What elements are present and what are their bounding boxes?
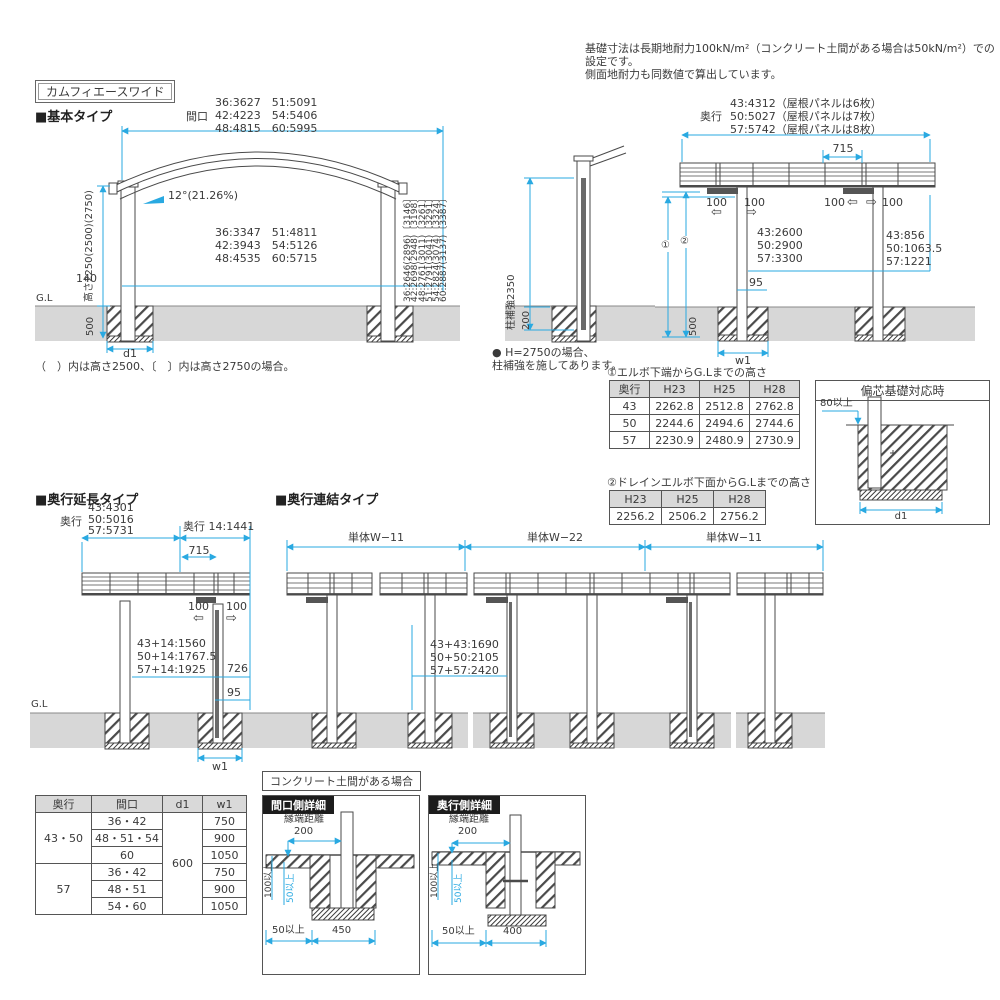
cell: 750: [203, 813, 247, 830]
front-height-label: 高さ2250(2500)(2750): [84, 190, 96, 302]
hollow-arrow-right-icon: ⇨: [226, 612, 237, 625]
dim-text: 42:4223 54:5406: [215, 109, 317, 122]
dim-text: 42:3943 54:5126: [215, 239, 317, 252]
cell: 2230.9: [650, 432, 700, 449]
ext-dim-715: 715: [184, 544, 214, 557]
cell: 36・42: [92, 813, 163, 830]
dim-50-min-vertical: 50以上: [453, 874, 466, 903]
dim-50-min-horizontal: 50以上: [272, 925, 305, 937]
ext-gl-label: G.L: [31, 699, 48, 711]
cell: 48・51: [92, 881, 163, 898]
cell: 600: [163, 813, 203, 915]
dim-text: 43:2600: [757, 226, 803, 239]
basic-type-heading: ■基本タイプ: [35, 106, 112, 125]
cell: 50: [610, 415, 650, 432]
front-arch-roof: [109, 152, 407, 199]
dim-text: 36:3627 51:5091: [215, 96, 317, 109]
pillar-dim-200: 200: [521, 311, 533, 330]
pillar-reinforce-label: 柱補強2350: [506, 275, 518, 330]
okuyuki-detail-title: 奥行側詳細: [429, 796, 500, 814]
hollow-arrow-left-icon: ⇦: [711, 206, 722, 219]
connection-dimensions: [287, 540, 823, 710]
cell: 2244.6: [650, 415, 700, 432]
cell: 2262.8: [650, 398, 700, 415]
cell: 60: [92, 847, 163, 864]
ext-w1-label: w1: [206, 760, 234, 773]
dim-text: 50:5027（屋根パネルは7枚）: [730, 110, 882, 123]
cell: 2744.6: [750, 415, 800, 432]
col-header: H23: [650, 381, 700, 398]
cell: 36・42: [92, 864, 163, 881]
side-right-values: 43:856 50:1063.5 57:1221: [886, 229, 942, 268]
ext-sum-values: 43+14:1560 50+14:1767.5 57+14:1925: [137, 637, 216, 676]
drain-table-title: ②ドレインエルボ下面からG.Lまでの高さ: [607, 476, 811, 489]
ext-dim-95: 95: [227, 686, 241, 699]
cell: 43・50: [36, 813, 92, 864]
connection-heading: ■奥行連結タイプ: [275, 489, 378, 508]
note-line2: 側面地耐力も同数値で算出しています。: [585, 68, 995, 81]
pillar-note: ● H=2750の場合、 柱補強を施してあります。: [492, 346, 622, 372]
col-header: H25: [700, 381, 750, 398]
side-depth-values: 43:4312（屋根パネルは6枚） 50:5027（屋根パネルは7枚） 57:5…: [730, 97, 882, 136]
cell: 2506.2: [662, 508, 714, 525]
dim-200: 200: [294, 826, 313, 838]
ext-depth-prefix: 奥行: [60, 515, 82, 528]
note-line: ● H=2750の場合、: [492, 346, 622, 359]
col-header: H23: [610, 491, 662, 508]
dim-100-min: 100以上: [429, 863, 442, 898]
cell: 1050: [203, 898, 247, 915]
side-dim-100-d: 100: [882, 196, 903, 209]
col-header: w1: [203, 796, 247, 813]
connection-roofs: [287, 573, 823, 595]
eccentric-dim-80: 80以上: [820, 398, 853, 410]
table-row: 50 2244.6 2494.6 2744.6: [610, 415, 800, 432]
connection-span1-label: 単体W−11: [287, 531, 465, 544]
edge-distance-label: 縁端距離: [284, 814, 324, 826]
ext-main-values: 43:4301 50:5016 57:5731: [88, 502, 134, 537]
dim-text: 43:4312（屋根パネルは6枚）: [730, 97, 882, 110]
eccentric-d1-label: d1: [886, 511, 916, 523]
hollow-arrow-right-icon: ⇨: [866, 196, 877, 209]
extension-roof: [82, 573, 250, 595]
dim-text: 57:5742（屋根パネルは8枚）: [730, 123, 882, 136]
cell: 2730.9: [750, 432, 800, 449]
dim-text: 57+14:1925: [137, 663, 216, 676]
dim-text: 50+50:2105: [430, 651, 499, 664]
front-span-prefix: 間口: [186, 110, 208, 123]
cell: 48・51・54: [92, 830, 163, 847]
connection-sum-values: 43+43:1690 50+50:2105 57+57:2420: [430, 638, 499, 677]
front-d1-label: d1: [115, 347, 145, 360]
cell: 750: [203, 864, 247, 881]
cell: 2480.9: [700, 432, 750, 449]
drain-height-table: H23 H25 H28 2256.2 2506.2 2756.2: [609, 490, 766, 525]
table-row: 57 36・42 750: [36, 864, 247, 881]
dim-text: 43+14:1560: [137, 637, 216, 650]
cell: 54・60: [92, 898, 163, 915]
circled-2-marker: ②: [680, 236, 689, 248]
dim-100-min: 100以上: [263, 863, 276, 898]
side-dim-715: 715: [828, 142, 858, 155]
dim-text: 60:2887(3137)〔3387〕: [441, 194, 448, 302]
table-row: 43 2262.8 2512.8 2762.8: [610, 398, 800, 415]
elbow-height-table: 奥行 H23 H25 H28 43 2262.8 2512.8 2762.8 5…: [609, 380, 800, 449]
col-header: H25: [662, 491, 714, 508]
dim-text: 57:5731: [88, 525, 134, 537]
dim-text: 50:2900: [757, 239, 803, 252]
dim-text: 36:3347 51:4811: [215, 226, 317, 239]
spec-sheet-page: 基礎寸法は長期地耐力100kN/m²（コンクリート土間がある場合は50kN/m²…: [0, 0, 1000, 1000]
note-line: 柱補強を施してあります。: [492, 359, 622, 372]
hollow-arrow-left-icon: ⇦: [193, 612, 204, 625]
cell: 43: [610, 398, 650, 415]
hollow-arrow-left-icon: ⇦: [847, 196, 858, 209]
side-roof: [680, 163, 935, 194]
edge-distance-label: 縁端距離: [449, 814, 489, 826]
dim-text: 48:4815 60:5995: [215, 122, 317, 135]
side-dim-500: 500: [688, 317, 700, 336]
front-footnote: （ ）内は高さ2500、〔 〕内は高さ2750の場合。: [35, 360, 295, 373]
product-title-box: カムフィエースワイド: [35, 80, 175, 103]
col-header: 間口: [92, 796, 163, 813]
col-header: H28: [750, 381, 800, 398]
dim-text: 57:3300: [757, 252, 803, 265]
foundation-note: 基礎寸法は長期地耐力100kN/m²（コンクリート土間がある場合は50kN/m²…: [585, 42, 995, 81]
cell: 57: [36, 864, 92, 915]
side-mid-values: 43:2600 50:2900 57:3300: [757, 226, 803, 265]
dim-50-min-vertical: 50以上: [285, 874, 298, 903]
side-depth-prefix: 奥行: [700, 110, 722, 123]
front-slope-label: 12°(21.26%): [168, 189, 238, 202]
elbow-table-title: ①エルボ下端からG.Lまでの高さ: [607, 366, 767, 379]
dim-text: 50:1063.5: [886, 242, 942, 255]
hollow-arrow-right-icon: ⇨: [746, 206, 757, 219]
col-header: H28: [714, 491, 766, 508]
cell: 2762.8: [750, 398, 800, 415]
cell: 900: [203, 830, 247, 847]
dim-text: 57:1221: [886, 255, 942, 268]
ext-dim-726: 726: [227, 662, 248, 675]
cell: 2756.2: [714, 508, 766, 525]
size-spec-table: 奥行 間口 d1 w1 43・50 36・42 600 750 48・51・54…: [35, 795, 247, 915]
dim-450: 450: [332, 925, 351, 937]
cell: 900: [203, 881, 247, 898]
col-header: 奥行: [610, 381, 650, 398]
col-header: d1: [163, 796, 203, 813]
connection-span2-label: 単体W−22: [465, 531, 645, 544]
dim-400: 400: [503, 926, 522, 938]
front-dim-500: 500: [85, 317, 97, 336]
table-row: 2256.2 2506.2 2756.2: [610, 508, 766, 525]
maguchi-detail-title: 間口側詳細: [263, 796, 334, 814]
cell: 2256.2: [610, 508, 662, 525]
connection-drawing: [285, 540, 825, 748]
front-mid-values: 36:3347 51:4811 42:3943 54:5126 48:4535 …: [215, 226, 317, 265]
dim-text: 48:4535 60:5715: [215, 252, 317, 265]
note-line1: 基礎寸法は長期地耐力100kN/m²（コンクリート土間がある場合は50kN/m²…: [585, 42, 995, 68]
front-gl-label: G.L: [36, 293, 53, 305]
front-right-dim-column: 36:2646(2896)〔3146〕 42:2698(2948)〔3198〕 …: [405, 194, 449, 302]
dim-50-min-horizontal: 50以上: [442, 926, 475, 938]
col-header: 奥行: [36, 796, 92, 813]
connection-span3-label: 単体W−11: [645, 531, 823, 544]
front-span-values: 36:3627 51:5091 42:4223 54:5406 48:4815 …: [215, 96, 317, 135]
dim-text: 43:4301: [88, 502, 134, 514]
cell: 1050: [203, 847, 247, 864]
table-row: 57 2230.9 2480.9 2730.9: [610, 432, 800, 449]
side-dim-100-c: 100: [824, 196, 845, 209]
dim-text: 43:856: [886, 229, 942, 242]
cell: 2512.8: [700, 398, 750, 415]
cell: 57: [610, 432, 650, 449]
cell: 2494.6: [700, 415, 750, 432]
dim-200: 200: [458, 826, 477, 838]
product-title: カムフィエースワイド: [46, 85, 164, 99]
table-row: 43・50 36・42 600 750: [36, 813, 247, 830]
dim-text: 57+57:2420: [430, 664, 499, 677]
ext-depth14-label: 奥行 14:1441: [183, 520, 254, 533]
concrete-note-box: コンクリート土間がある場合: [262, 771, 421, 791]
circled-1-marker: ①: [661, 240, 670, 252]
dim-text: 50+14:1767.5: [137, 650, 216, 663]
dim-text: 43+43:1690: [430, 638, 499, 651]
side-dim-95: 95: [749, 276, 763, 289]
